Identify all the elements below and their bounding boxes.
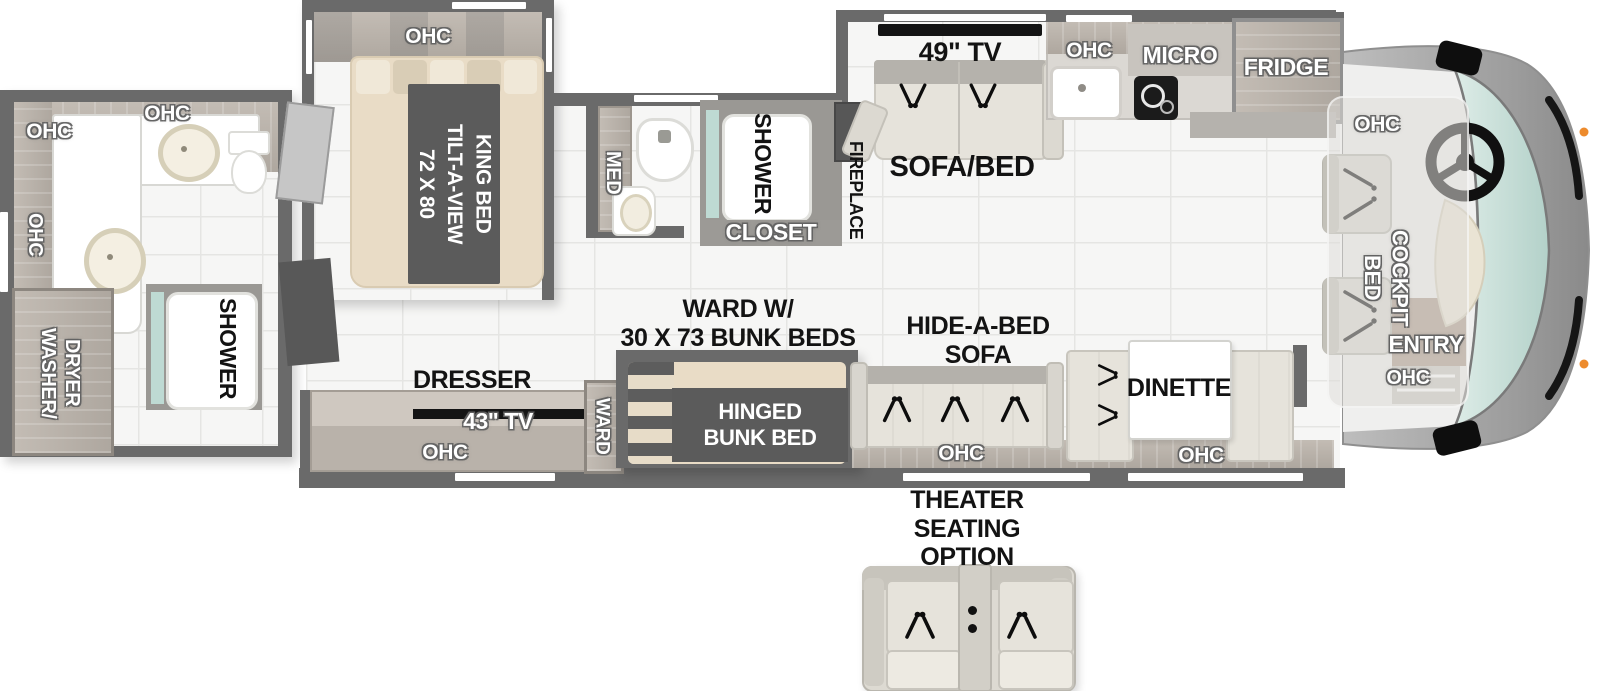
dinette-label: DINETTE [1126,374,1232,402]
bedroom-ohc-label: OHC [396,24,460,50]
toilet-flush [658,130,671,143]
dresser-label: DRESSER [398,366,546,394]
bath-sink-drain [181,146,187,152]
sofa-armrest [850,362,868,450]
seatbelt-icon [963,82,1003,110]
cockpit-ohc-label: OHC [1336,112,1418,138]
seatbelt-icon [898,610,942,640]
ward-label: WARD [588,392,616,460]
hide-a-bed-label: HIDE-A-BED SOFA [888,312,1068,370]
entry-label: ENTRY [1384,332,1468,358]
seatbelt-icon [1089,399,1127,431]
rear-bath-ohc-label: OHC [18,120,80,144]
window [452,2,526,9]
bunk-caption-label: WARD W/ 30 X 73 BUNK BEDS [605,294,871,354]
bunk-ladder [628,362,674,464]
window [306,20,312,74]
rear-bath-ohc-side-label: OHC [22,198,48,272]
dresser-ohc-label: OHC [412,441,478,465]
toilet [636,118,694,182]
kitchen-sink [1050,66,1122,120]
window [1066,15,1132,22]
seatbelt-icon [1089,359,1127,391]
mid-shower-glass [706,110,719,218]
bath-sink [158,124,220,182]
seatbelt-icon [893,82,933,110]
dinette-bench [1226,350,1294,462]
door-panel [279,258,340,366]
washer-dryer-label: WASHER/ DRYER [32,300,88,446]
wall-segment [1293,345,1307,407]
marker-light [1580,360,1589,369]
seatbelt-icon [876,394,918,424]
tv-49-label: 49" TV [880,38,1040,66]
hinged-bunk-label: HINGED BUNK BED [676,394,844,456]
window [903,473,1090,481]
window [455,473,555,481]
micro-label: MICRO [1138,42,1222,70]
cockpit-ohc-bottom-label: OHC [1372,366,1444,390]
seatbelt-icon [1000,610,1044,640]
kitchen-ohc-label: OHC [1056,38,1122,64]
rear-shower-glass [151,292,164,404]
rear-bath-ohc-label: OHC [136,102,198,126]
fireplace-label: FIREPLACE [844,140,868,240]
kitchen-faucet [1078,84,1086,92]
window [884,14,1046,21]
closet-label: CLOSET [702,220,840,246]
seatbelt-icon [934,394,976,424]
cockpit-bed-label: COCKPIT BED [1356,210,1416,346]
wall-segment [836,10,848,106]
king-bed-label: 72 X 80 TILT-A-VIEW KING BED [409,88,499,280]
hide-a-bed-ohc-label: OHC [928,442,994,466]
tv-43-label: 43" TV [448,409,548,435]
theater-seat-cushion [998,650,1074,690]
sofa-seam [958,62,960,154]
bed-pillow [504,60,537,94]
tv-49 [878,24,1042,36]
seatbelt-icon [994,394,1036,424]
bed-pillow [356,60,390,94]
window [546,18,552,72]
theater-option-label: THEATER SEATING OPTION [858,500,1076,558]
window [1128,473,1303,481]
cupholder [968,624,977,633]
bath-sink-drain [107,254,113,260]
med-cabinet-label: MED [600,140,626,206]
rv-floorplan-canvas: OHC OHC OHC WASHER/ DRYER SHOWER 72 X 80… [0,0,1600,691]
cooktop-burner [1160,100,1174,114]
mid-bath-wall [586,104,598,232]
cupholder [968,606,977,615]
window [0,212,8,292]
fridge-label: FRIDGE [1242,54,1330,82]
dinette-ohc-label: OHC [1166,444,1236,468]
theater-seat-cushion [886,650,962,690]
sofa-armrest [1046,362,1064,450]
rear-shower-label: SHOWER [212,296,242,402]
toilet-bowl [231,150,267,194]
theater-armrest [864,578,884,686]
mid-shower-label: SHOWER [746,110,778,218]
bath-sink [84,228,146,294]
marker-light [1580,128,1589,137]
sofa-bed-label: SOFA/BED [872,152,1052,182]
